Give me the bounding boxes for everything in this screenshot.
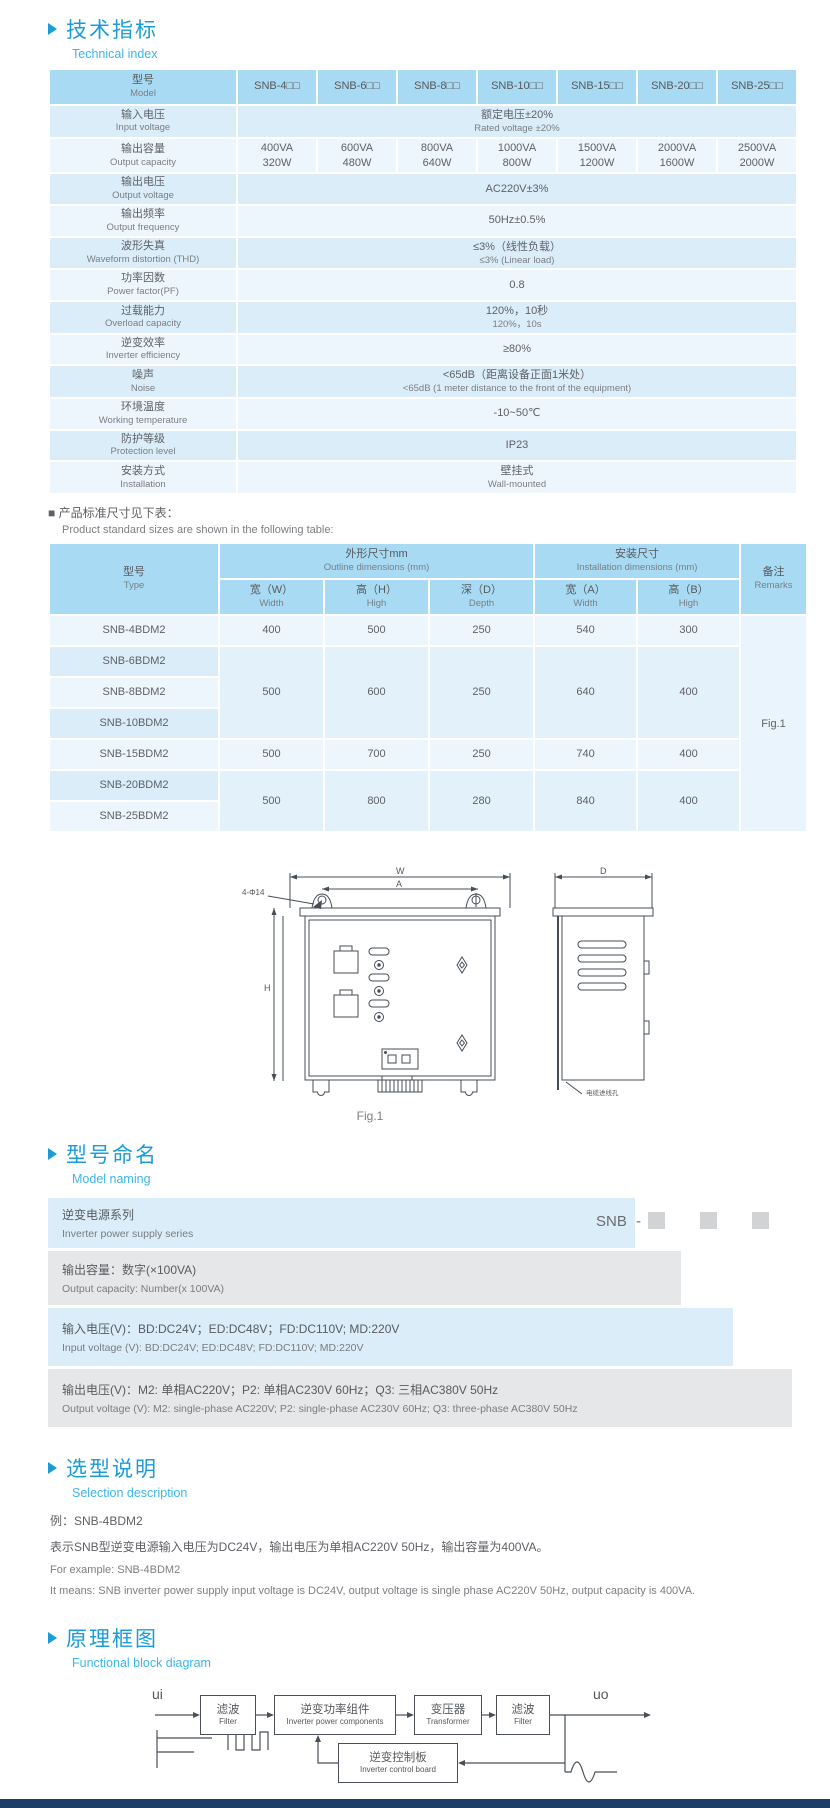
model-prefix: SNB bbox=[596, 1213, 627, 1230]
spec-label: 安装方式Installation bbox=[50, 462, 236, 493]
selection-meaning-en: It means: SNB inverter power supply inpu… bbox=[50, 1585, 792, 1597]
section-title-en: Functional block diagram bbox=[72, 1656, 792, 1670]
dim-cell: 740 bbox=[535, 740, 636, 769]
spec-label: 逆变效率Inverter efficiency bbox=[50, 335, 236, 365]
dim-cell: 540 bbox=[535, 616, 636, 645]
table-row: 输出容量Output capacity 400VA320W 600VA480W … bbox=[50, 139, 796, 173]
dim-cell: 400 bbox=[638, 740, 739, 769]
dim-cell: 600 bbox=[325, 647, 428, 738]
table-row: 输出频率Output frequency 50Hz±0.5% bbox=[50, 206, 796, 236]
note-zh: ■ 产品标准尺寸见下表： bbox=[48, 504, 792, 521]
spec-value: 额定电压±20%Rated voltage ±20% bbox=[238, 106, 796, 137]
code-box-input-voltage bbox=[700, 1212, 717, 1229]
figure-caption: Fig.1 bbox=[270, 1109, 470, 1123]
table-row: 输入电压Input voltage 额定电压±20%Rated voltage … bbox=[50, 106, 796, 137]
section-block-diagram-title: 原理框图 bbox=[48, 1623, 792, 1653]
remark-cell: Fig.1 bbox=[741, 616, 806, 831]
block-diagram: ui uo 滤波Filter 逆变功率组件Inverter power comp… bbox=[48, 1684, 792, 1802]
model-header-cell: 型号Model bbox=[50, 70, 236, 104]
page-footer-bar bbox=[0, 1799, 830, 1808]
selection-example-en: For example: SNB-4BDM2 bbox=[50, 1564, 792, 1576]
dim-d-label: D bbox=[600, 866, 607, 876]
section-title-zh: 选型说明 bbox=[66, 1453, 158, 1483]
spec-value: 2000VA1600W bbox=[638, 139, 716, 173]
type-cell: SNB-15BDM2 bbox=[50, 740, 218, 769]
section-title-en: Model naming bbox=[72, 1172, 792, 1186]
spec-label: 输出容量Output capacity bbox=[50, 139, 236, 173]
spec-value: 1500VA1200W bbox=[558, 139, 636, 173]
table-row: 安装方式Installation 壁挂式Wall-mounted bbox=[50, 462, 796, 493]
type-cell: SNB-6BDM2 bbox=[50, 647, 218, 676]
spec-label: 噪声Noise bbox=[50, 366, 236, 397]
spec-value: 400VA320W bbox=[238, 139, 316, 173]
outline-header: 外形尺寸mmOutline dimensions (mm) bbox=[220, 544, 533, 578]
selection-meaning-zh: 表示SNB型逆变电源输入电压为DC24V，输出电压为单相AC220V 50Hz，… bbox=[50, 1538, 792, 1555]
table-row: 波形失真Waveform distortion (THD) ≤3%（线性负载）≤… bbox=[50, 238, 796, 269]
block-filter-1: 滤波Filter bbox=[200, 1695, 256, 1735]
spec-label: 输入电压Input voltage bbox=[50, 106, 236, 137]
table-row: 型号Type 外形尺寸mmOutline dimensions (mm) 安装尺… bbox=[50, 544, 806, 578]
table-row: SNB-15BDM2 500 700 250 740 400 bbox=[50, 740, 806, 769]
dim-cell: 700 bbox=[325, 740, 428, 769]
dim-cell: 500 bbox=[220, 771, 323, 831]
model-name: SNB-8□□ bbox=[398, 70, 476, 104]
section-title-zh: 原理框图 bbox=[66, 1623, 158, 1653]
standard-sizes-note: ■ 产品标准尺寸见下表： Product standard sizes are … bbox=[48, 504, 792, 536]
table-row: 环境温度Working temperature -10~50℃ bbox=[50, 399, 796, 429]
dim-cell: 300 bbox=[638, 616, 739, 645]
spec-label: 环境温度Working temperature bbox=[50, 399, 236, 429]
table-row: 型号Model SNB-4□□ SNB-6□□ SNB-8□□ SNB-10□□… bbox=[50, 70, 796, 104]
dim-cell: 840 bbox=[535, 771, 636, 831]
dim-cell: 800 bbox=[325, 771, 428, 831]
technical-spec-table: 型号Model SNB-4□□ SNB-6□□ SNB-8□□ SNB-10□□… bbox=[48, 68, 798, 495]
triangle-bullet-icon bbox=[48, 1632, 57, 1644]
table-row: 防护等级Protection level IP23 bbox=[50, 431, 796, 461]
section-title-zh: 型号命名 bbox=[66, 1139, 158, 1169]
dim-cell: 250 bbox=[430, 616, 533, 645]
model-name: SNB-20□□ bbox=[638, 70, 716, 104]
dim-cell: 640 bbox=[535, 647, 636, 738]
dimension-table: 型号Type 外形尺寸mmOutline dimensions (mm) 安装尺… bbox=[48, 542, 808, 833]
type-cell: SNB-10BDM2 bbox=[50, 709, 218, 738]
spec-value: 800VA640W bbox=[398, 139, 476, 173]
spec-value: 120%，10秒120%，10s bbox=[238, 302, 796, 333]
model-code-legend: SNB - bbox=[48, 1198, 792, 1248]
input-label: ui bbox=[152, 1686, 163, 1702]
triangle-bullet-icon bbox=[48, 1148, 57, 1160]
table-row: SNB-4BDM2 400 500 250 540 300 Fig.1 bbox=[50, 616, 806, 645]
model-name: SNB-4□□ bbox=[238, 70, 316, 104]
spec-label: 波形失真Waveform distortion (THD) bbox=[50, 238, 236, 269]
type-cell: SNB-4BDM2 bbox=[50, 616, 218, 645]
sine-wave-icon bbox=[565, 1762, 617, 1782]
remarks-header: 备注Remarks bbox=[741, 544, 806, 614]
model-name: SNB-15□□ bbox=[558, 70, 636, 104]
output-label: uo bbox=[593, 1686, 609, 1702]
model-dash: - bbox=[636, 1213, 641, 1230]
spec-value: 2500VA2000W bbox=[718, 139, 796, 173]
table-row: 噪声Noise <65dB（距离设备正面1米处）<65dB (1 meter d… bbox=[50, 366, 796, 397]
block-control-board: 逆变控制板Inverter control board bbox=[338, 1743, 458, 1783]
spec-label: 输出电压Output voltage bbox=[50, 174, 236, 204]
spec-label: 过载能力Overload capacity bbox=[50, 302, 236, 333]
holes-label: 4-Φ14 bbox=[242, 888, 265, 897]
naming-row-capacity: 输出容量：数字(×100VA) Output capacity: Number(… bbox=[48, 1251, 681, 1305]
spec-label: 功率因数Power factor(PF) bbox=[50, 270, 236, 300]
table-row: 过载能力Overload capacity 120%，10秒120%，10s bbox=[50, 302, 796, 333]
front-view bbox=[268, 873, 510, 1096]
table-row: 输出电压Output voltage AC220V±3% bbox=[50, 174, 796, 204]
table-row: SNB-6BDM2 500 600 250 640 400 bbox=[50, 647, 806, 676]
dim-cell: 400 bbox=[220, 616, 323, 645]
code-box-output-voltage bbox=[752, 1212, 769, 1229]
spec-label: 输出频率Output frequency bbox=[50, 206, 236, 236]
model-name: SNB-25□□ bbox=[718, 70, 796, 104]
dim-cell: 250 bbox=[430, 740, 533, 769]
page-content: 技术指标 Technical index 型号Model SNB-4□□ SNB… bbox=[0, 0, 830, 1802]
sub-header: 深（D）Depth bbox=[430, 580, 533, 614]
model-name: SNB-10□□ bbox=[478, 70, 556, 104]
table-row: SNB-20BDM2 500 800 280 840 400 bbox=[50, 771, 806, 800]
side-view bbox=[553, 873, 653, 1094]
triangle-bullet-icon bbox=[48, 23, 57, 35]
type-header: 型号Type bbox=[50, 544, 218, 614]
block-inverter-power: 逆变功率组件Inverter power components bbox=[274, 1695, 396, 1735]
dimension-labels: W A H D 4-Φ14 电缆进线孔 cable inlet hole bbox=[242, 866, 650, 1098]
dim-cell: 400 bbox=[638, 647, 739, 738]
note-en: Product standard sizes are shown in the … bbox=[62, 524, 792, 536]
triangle-bullet-icon bbox=[48, 1462, 57, 1474]
dim-w-label: W bbox=[396, 866, 405, 876]
section-title-zh: 技术指标 bbox=[66, 14, 158, 44]
spec-value: -10~50℃ bbox=[238, 399, 796, 429]
table-row: 功率因数Power factor(PF) 0.8 bbox=[50, 270, 796, 300]
dim-cell: 400 bbox=[638, 771, 739, 831]
sub-header: 高（B）High bbox=[638, 580, 739, 614]
dim-a-label: A bbox=[396, 879, 402, 889]
table-row: 逆变效率Inverter efficiency ≥80% bbox=[50, 335, 796, 365]
dim-cell: 250 bbox=[430, 647, 533, 738]
spec-value: 壁挂式Wall-mounted bbox=[238, 462, 796, 493]
dim-cell: 280 bbox=[430, 771, 533, 831]
spec-value: IP23 bbox=[238, 431, 796, 461]
type-cell: SNB-20BDM2 bbox=[50, 771, 218, 800]
dim-cell: 500 bbox=[220, 740, 323, 769]
model-naming-diagram: SNB - 逆变电源系列 Inverter power supply serie… bbox=[48, 1198, 792, 1427]
model-name: SNB-6□□ bbox=[318, 70, 396, 104]
section-model-naming-title: 型号命名 bbox=[48, 1139, 792, 1169]
spec-value: 600VA480W bbox=[318, 139, 396, 173]
section-title-en: Technical index bbox=[72, 47, 792, 61]
type-cell: SNB-8BDM2 bbox=[50, 678, 218, 707]
spec-value: ≥80% bbox=[238, 335, 796, 365]
spec-value: <65dB（距离设备正面1米处）<65dB (1 meter distance … bbox=[238, 366, 796, 397]
code-box-capacity bbox=[648, 1212, 665, 1229]
dim-cell: 500 bbox=[220, 647, 323, 738]
section-title-en: Selection description bbox=[72, 1486, 792, 1500]
cable-inlet-label-zh: 电缆进线孔 bbox=[586, 1088, 619, 1097]
section-technical-index-title: 技术指标 bbox=[48, 14, 792, 44]
spec-value: AC220V±3% bbox=[238, 174, 796, 204]
block-filter-2: 滤波Filter bbox=[496, 1695, 550, 1735]
spec-value: 1000VA800W bbox=[478, 139, 556, 173]
block-transformer: 变压器Transformer bbox=[414, 1695, 482, 1735]
spec-label: 防护等级Protection level bbox=[50, 431, 236, 461]
selection-text: 例：SNB-4BDM2 表示SNB型逆变电源输入电压为DC24V，输出电压为单相… bbox=[50, 1512, 792, 1597]
naming-row-output-voltage: 输出电压(V)：M2: 单相AC220V；P2: 单相AC230V 60Hz；Q… bbox=[48, 1369, 792, 1427]
spec-value: ≤3%（线性负载）≤3% (Linear load) bbox=[238, 238, 796, 269]
naming-row-input-voltage: 输入电压(V)：BD:DC24V；ED:DC48V；FD:DC110V; MD:… bbox=[48, 1308, 733, 1366]
catalog-page: 技术指标 Technical index 型号Model SNB-4□□ SNB… bbox=[0, 0, 830, 1808]
outline-drawing: W A H D 4-Φ14 电缆进线孔 cable inlet hole Fig… bbox=[210, 863, 690, 1123]
install-header: 安装尺寸Installation dimensions (mm) bbox=[535, 544, 739, 578]
dim-cell: 500 bbox=[325, 616, 428, 645]
sub-header: 宽（W）Width bbox=[220, 580, 323, 614]
section-selection-title: 选型说明 bbox=[48, 1453, 792, 1483]
type-cell: SNB-25BDM2 bbox=[50, 802, 218, 831]
spec-value: 0.8 bbox=[238, 270, 796, 300]
dim-h-label: H bbox=[264, 983, 271, 993]
dc-waveform-icon bbox=[157, 1730, 212, 1768]
sub-header: 宽（A）Width bbox=[535, 580, 636, 614]
selection-example-zh: 例：SNB-4BDM2 bbox=[50, 1512, 792, 1529]
outline-drawing-svg: W A H D 4-Φ14 电缆进线孔 cable inlet hole bbox=[210, 863, 690, 1098]
spec-value: 50Hz±0.5% bbox=[238, 206, 796, 236]
sub-header: 高（H）High bbox=[325, 580, 428, 614]
